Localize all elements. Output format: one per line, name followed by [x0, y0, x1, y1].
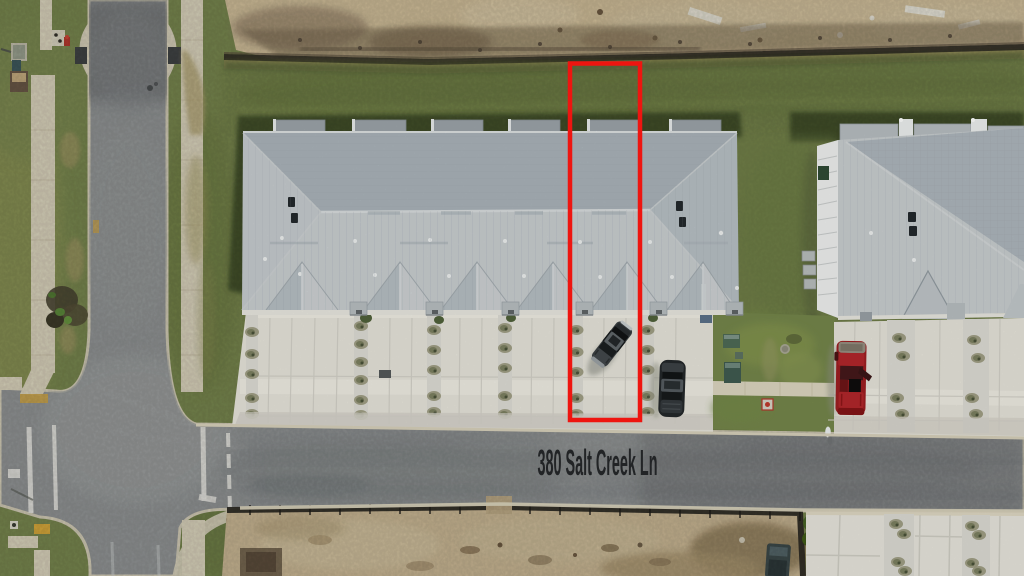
svg-text:380 Salt Creek Ln: 380 Salt Creek Ln [538, 442, 658, 483]
